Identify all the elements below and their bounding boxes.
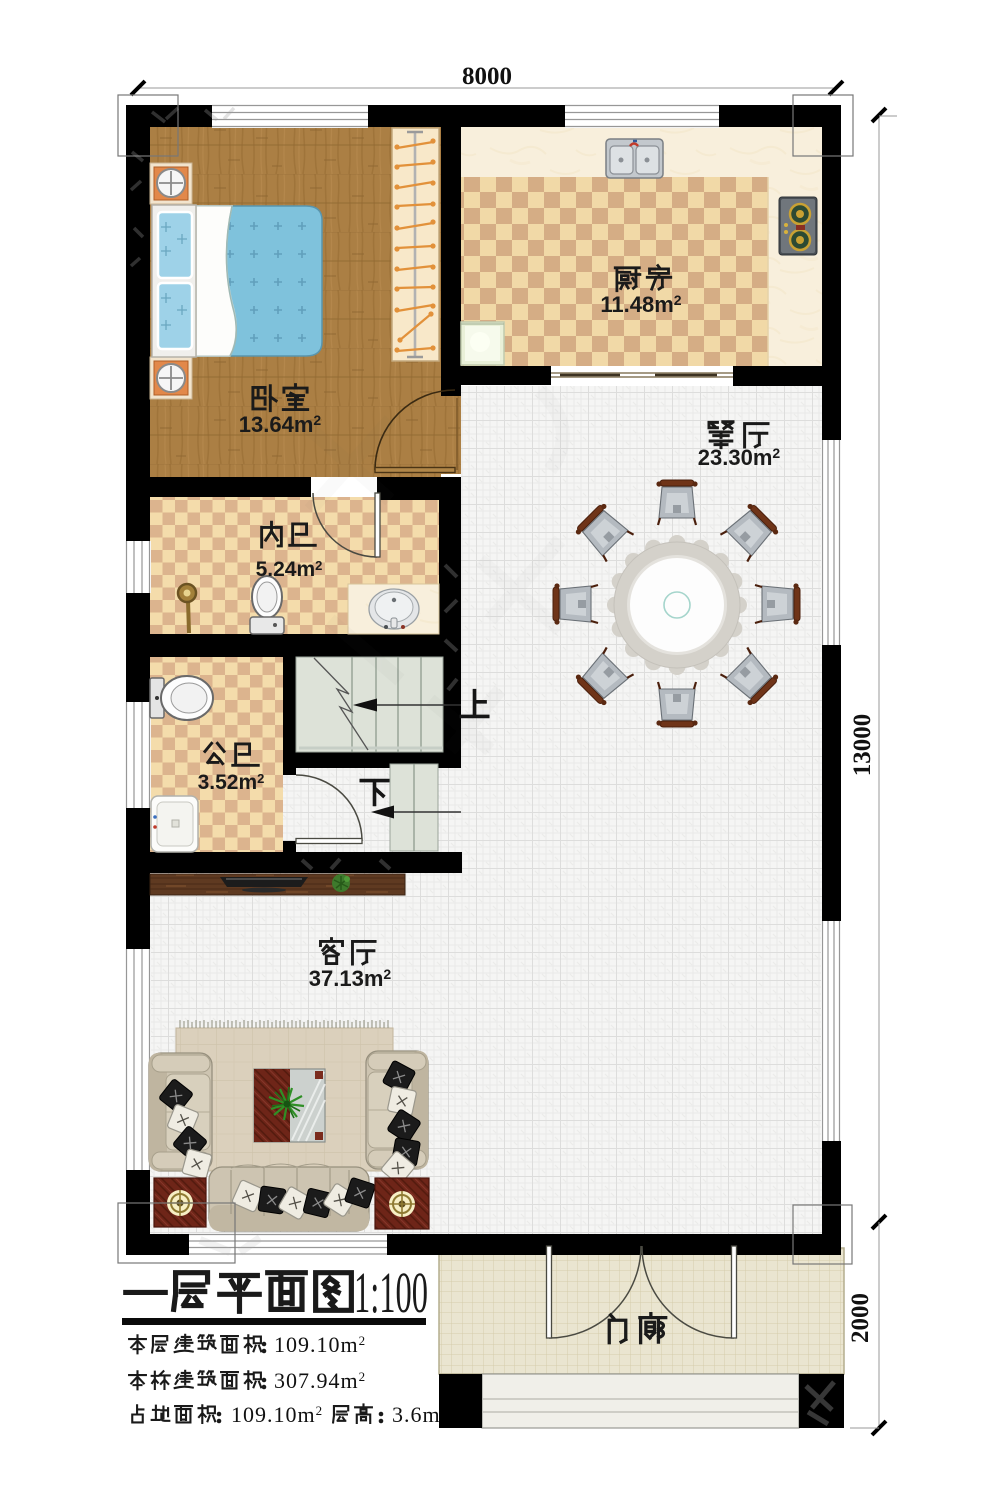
svg-text:109.10m2: 109.10m2 (274, 1332, 366, 1357)
svg-text:2000: 2000 (847, 1293, 874, 1343)
svg-text:8000: 8000 (462, 63, 512, 90)
svg-text:23.30m2: 23.30m2 (698, 445, 781, 470)
svg-text:11.48m2: 11.48m2 (600, 292, 681, 317)
svg-text:5.24m2: 5.24m2 (256, 558, 323, 581)
svg-text:3.52m2: 3.52m2 (198, 771, 265, 794)
svg-text:13000: 13000 (849, 714, 876, 777)
svg-text:109.10m2: 109.10m2 (231, 1402, 323, 1427)
svg-text:307.94m2: 307.94m2 (274, 1368, 366, 1393)
svg-text:3.6m: 3.6m (392, 1402, 441, 1427)
svg-text:37.13m2: 37.13m2 (309, 966, 392, 991)
svg-text:1:100: 1:100 (354, 1260, 428, 1325)
